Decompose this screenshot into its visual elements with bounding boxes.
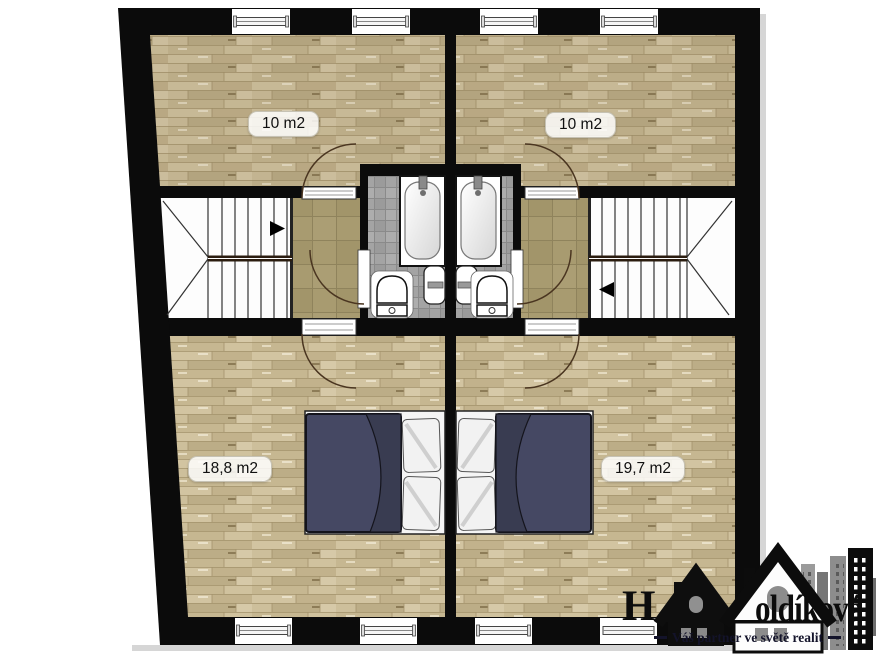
tub-faucet-icon [474, 176, 482, 189]
brand-tagline: Váš partner ve světě realit [654, 631, 872, 645]
area-label-lower-right: 19,7 m2 [601, 456, 685, 482]
area-label-upper-left: 10 m2 [248, 111, 319, 137]
bathtub-right [456, 176, 501, 266]
realty-logo: H oldíková Váš partner ve světě realit [598, 540, 876, 657]
toilet-left [371, 271, 413, 318]
brand-text-fragment-left: H [622, 585, 655, 628]
bed-left [305, 411, 445, 534]
window-icon [360, 618, 417, 644]
hallway-left-floor [293, 198, 360, 318]
tub-faucet-icon [419, 176, 427, 189]
bathtub-left [400, 176, 445, 266]
window-icon [600, 9, 658, 34]
tagline-dash-left [654, 636, 667, 639]
sink-faucet-icon [428, 282, 443, 288]
bed-right [456, 411, 593, 534]
window-icon [352, 9, 410, 34]
window-icon [235, 618, 292, 644]
window-icon [480, 9, 538, 34]
tagline-dash-right [828, 636, 841, 639]
window-icon [232, 9, 290, 34]
sink-left [424, 266, 445, 304]
area-label-lower-left: 18,8 m2 [188, 456, 272, 482]
room-upper-right-tint [456, 35, 735, 186]
brand-text-fragment-right: oldíková [755, 590, 863, 628]
floorplan-canvas: 10 m2 10 m2 18,8 m2 19,7 m2 [0, 0, 876, 657]
area-label-upper-right: 10 m2 [545, 112, 616, 138]
window-icon [475, 618, 532, 644]
tagline-text: Váš partner ve světě realit [672, 631, 823, 645]
hallway-right-floor [521, 198, 588, 318]
toilet-right [471, 271, 513, 318]
party-wall [445, 35, 456, 617]
